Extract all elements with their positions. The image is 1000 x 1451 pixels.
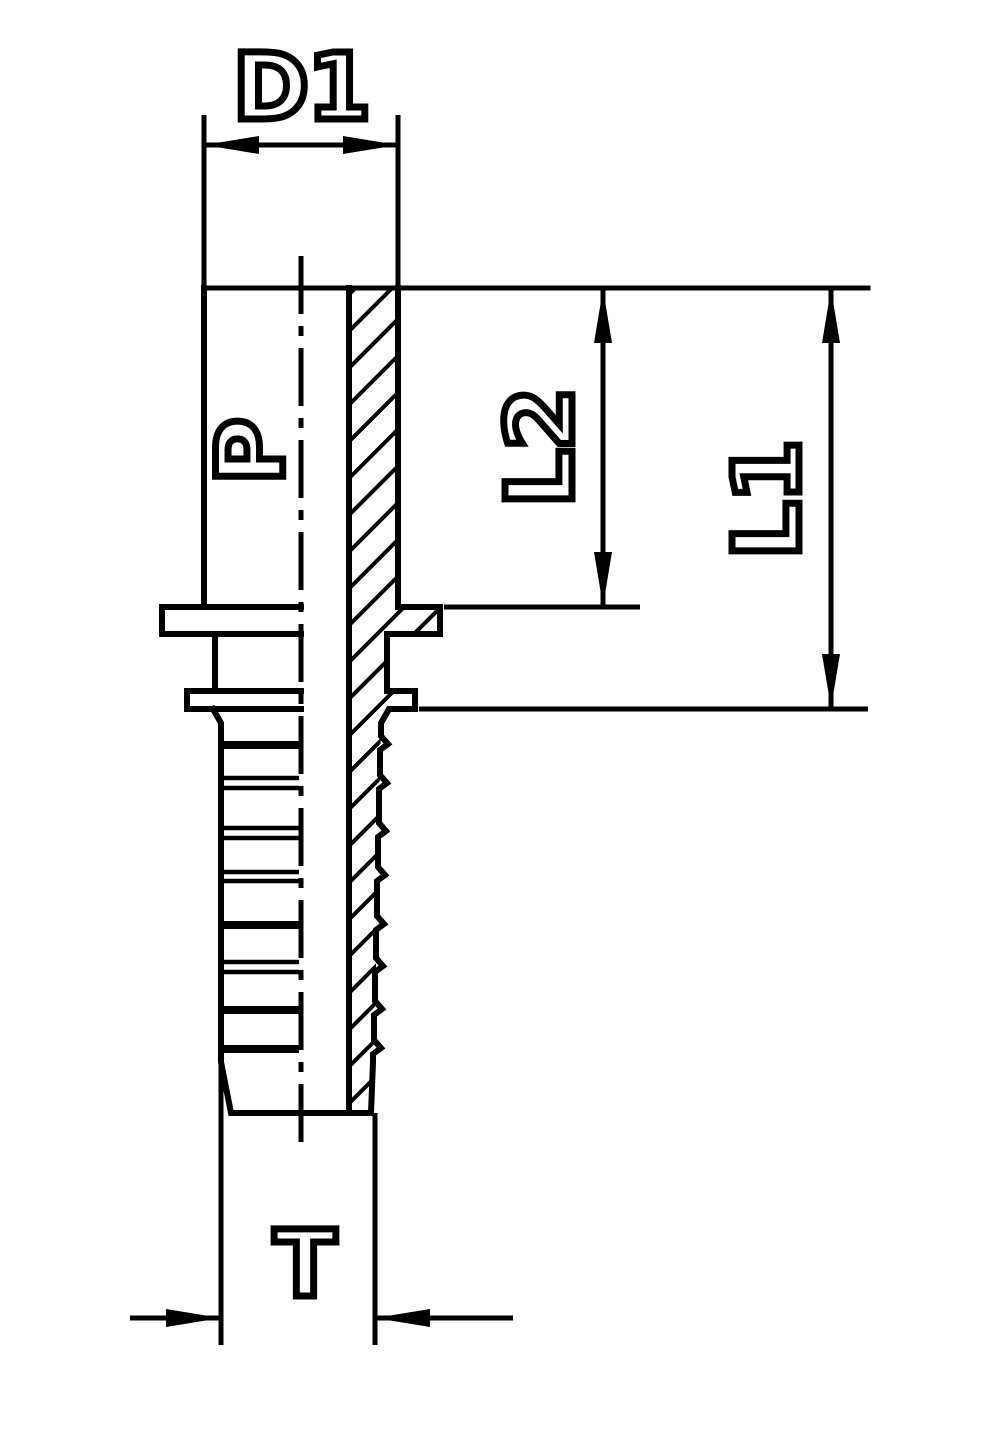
t-label: T bbox=[274, 1211, 337, 1318]
p-label: P bbox=[198, 419, 305, 484]
technical-drawing: D1 L2 L1 T P bbox=[0, 0, 1000, 1451]
l1-label: L1 bbox=[714, 441, 821, 560]
d1-label: D1 bbox=[233, 34, 369, 141]
label-p: P bbox=[198, 419, 305, 484]
drawing-background bbox=[0, 0, 1000, 1451]
l2-label: L2 bbox=[487, 389, 594, 508]
